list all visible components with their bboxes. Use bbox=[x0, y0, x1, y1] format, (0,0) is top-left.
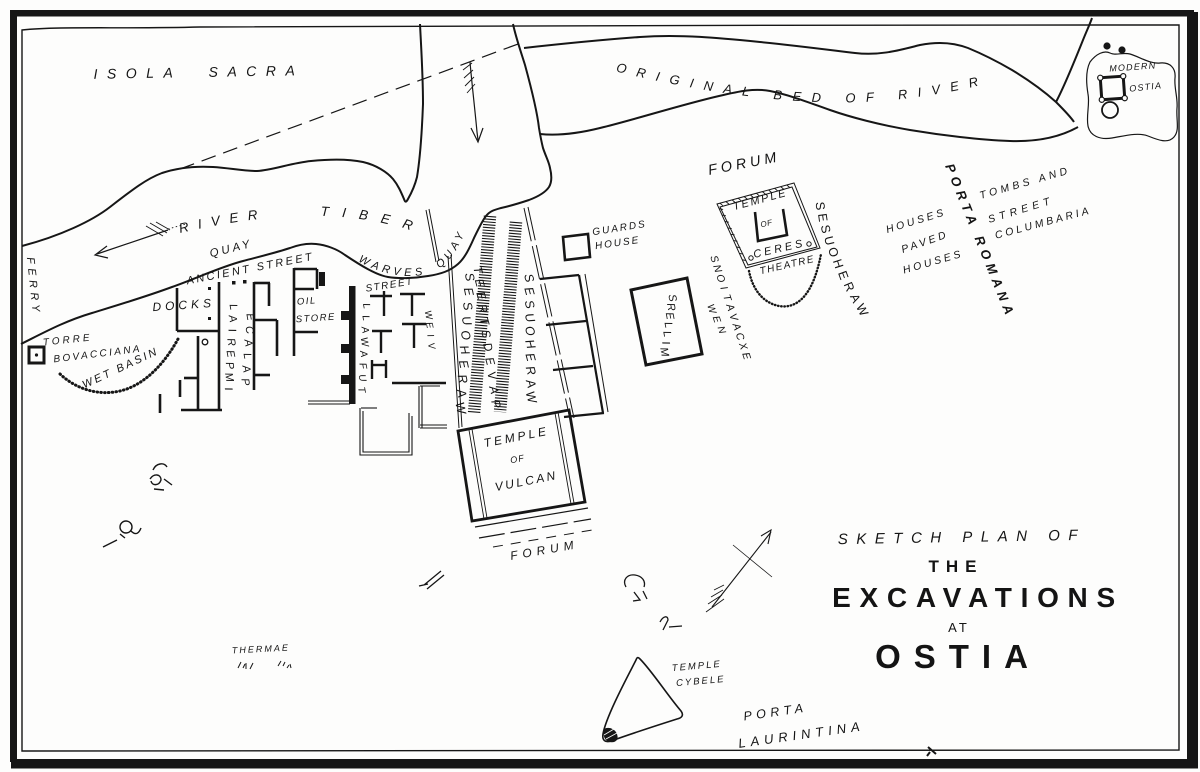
svg-text:S: S bbox=[813, 201, 828, 211]
svg-text:AT: AT bbox=[948, 620, 970, 635]
svg-text:OSTIA: OSTIA bbox=[875, 638, 1041, 675]
svg-text:THE: THE bbox=[929, 557, 984, 576]
svg-text:OIL: OIL bbox=[297, 295, 318, 307]
svg-text:EXCAVATIONS: EXCAVATIONS bbox=[832, 582, 1124, 613]
